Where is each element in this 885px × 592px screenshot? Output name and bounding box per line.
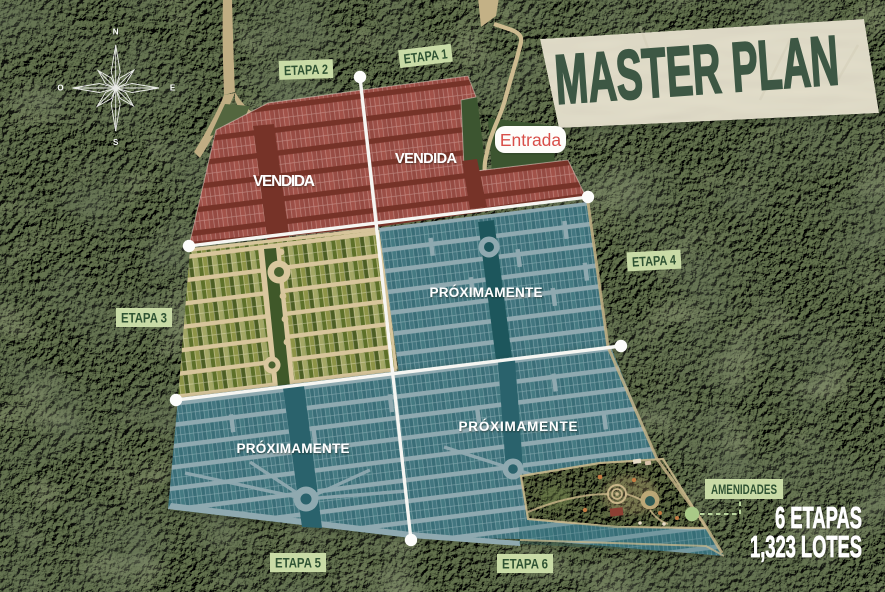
svg-text:S: S: [113, 138, 119, 147]
svg-text:PRÓXIMAMENTE: PRÓXIMAMENTE: [459, 419, 578, 434]
svg-text:E: E: [170, 84, 176, 93]
svg-text:ETAPA 4: ETAPA 4: [632, 252, 677, 269]
svg-text:PRÓXIMAMENTE: PRÓXIMAMENTE: [237, 441, 350, 456]
svg-text:AMENIDADES: AMENIDADES: [711, 482, 777, 497]
svg-text:O: O: [57, 84, 63, 93]
svg-text:VENDIDA: VENDIDA: [395, 151, 458, 167]
svg-text:ETAPA 2: ETAPA 2: [284, 62, 328, 79]
svg-text:ETAPA 5: ETAPA 5: [275, 556, 321, 571]
svg-text:1,323 LOTES: 1,323 LOTES: [750, 529, 862, 564]
svg-text:Entrada: Entrada: [500, 130, 562, 150]
svg-text:VENDIDA: VENDIDA: [253, 173, 315, 190]
svg-text:ETAPA 6: ETAPA 6: [502, 557, 548, 572]
svg-text:N: N: [113, 28, 119, 37]
svg-text:PRÓXIMAMENTE: PRÓXIMAMENTE: [430, 285, 543, 300]
svg-text:ETAPA 3: ETAPA 3: [121, 311, 167, 326]
